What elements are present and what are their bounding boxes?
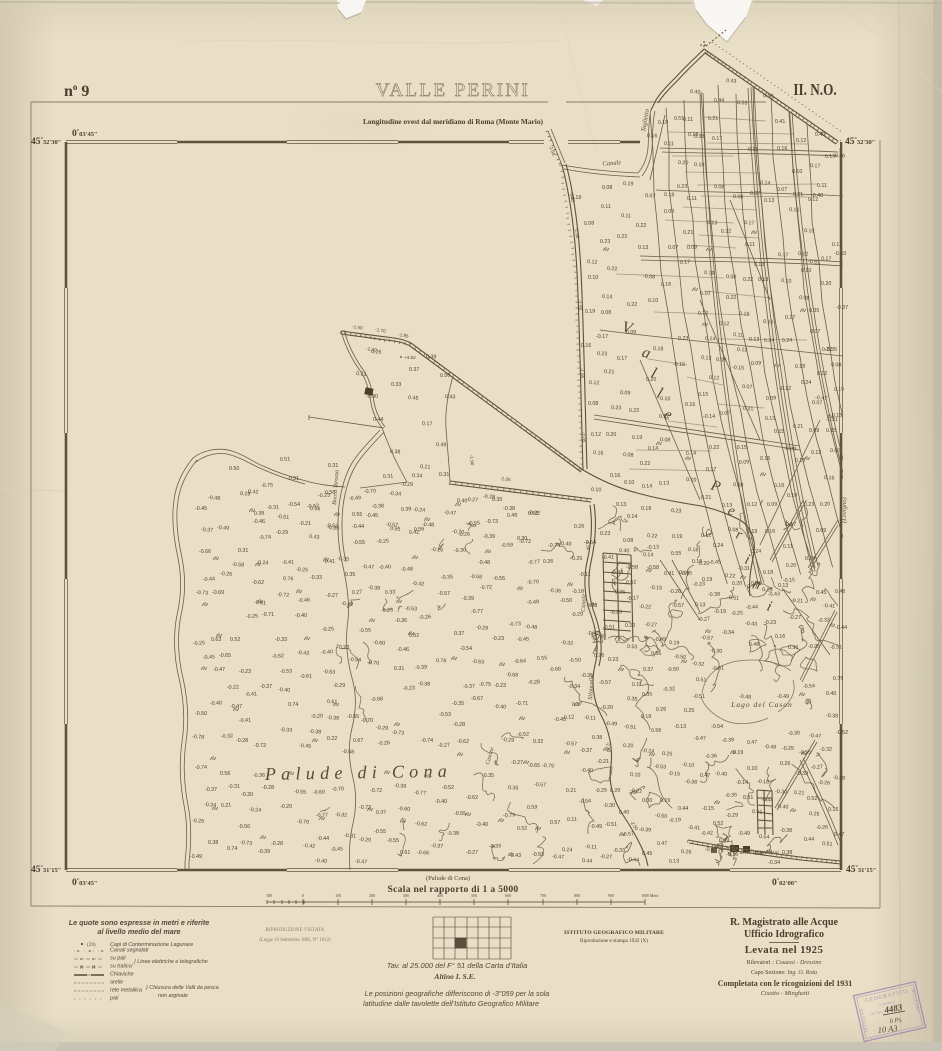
svg-text:0.16: 0.16 [685,402,695,408]
svg-text:0.55: 0.55 [390,526,401,533]
svg-text:-0.74: -0.74 [195,765,207,771]
svg-text:0.40: 0.40 [826,691,836,697]
svg-text:-0.27: -0.27 [466,497,478,503]
svg-text:-0.23: -0.23 [337,645,349,651]
svg-text:-0.47: -0.47 [213,667,225,673]
svg-text:-0.29: -0.29 [571,612,583,618]
svg-text:0.15: 0.15 [760,456,770,462]
svg-text:0.35: 0.35 [809,308,819,314]
svg-text:0.16: 0.16 [593,450,604,457]
svg-text:-0.64: -0.64 [514,658,526,665]
svg-text:-0.74: -0.74 [259,535,271,541]
svg-text:0.11: 0.11 [745,242,755,248]
svg-text:-0.15: -0.15 [702,806,714,812]
svg-text:-0.68: -0.68 [506,672,518,679]
svg-text:0.15: 0.15 [826,428,837,434]
svg-text:0.37: 0.37 [643,667,653,673]
svg-text:0.08: 0.08 [733,482,744,489]
svg-text:-0.15: -0.15 [732,365,744,371]
svg-text:-0.51: -0.51 [826,417,838,423]
svg-text:-0.16: -0.16 [726,852,738,858]
svg-text:-0.27: -0.27 [789,615,801,621]
svg-text:0.23: 0.23 [804,502,815,508]
svg-text:0.09: 0.09 [687,244,698,251]
svg-text:-0.09: -0.09 [784,446,796,452]
svg-text:-0.41: -0.41 [245,691,257,698]
svg-text:0.09: 0.09 [809,428,819,434]
svg-text:-0.23: -0.23 [239,669,251,675]
svg-text:0.20: 0.20 [625,623,636,629]
svg-text:0.10: 0.10 [624,480,634,486]
svg-text:0.12: 0.12 [591,431,602,438]
svg-text:arelle: arelle [110,980,123,986]
svg-text:Lago del Cason: Lago del Cason [730,700,793,709]
svg-text:0.39: 0.39 [426,354,437,360]
svg-text:0.25: 0.25 [809,811,820,818]
svg-text:0.47: 0.47 [700,773,710,779]
svg-text:0.12: 0.12 [747,502,758,508]
svg-text:0.16: 0.16 [795,457,806,464]
svg-text:0.19: 0.19 [672,534,682,540]
svg-text:0.40: 0.40 [690,89,701,96]
svg-text:-0.62: -0.62 [252,580,264,586]
svg-text:0.49: 0.49 [436,442,447,448]
svg-text:Riproduzione e stampa 1932 (X): Riproduzione e stampa 1932 (X) [580,937,648,944]
svg-text:-0.23: -0.23 [693,581,706,588]
svg-text:-0.25: -0.25 [193,640,205,647]
svg-text:0.35: 0.35 [627,696,638,703]
svg-text:0.17: 0.17 [832,242,843,248]
svg-text:-0.62: -0.62 [415,821,428,828]
svg-text:0.36: 0.36 [788,645,799,651]
svg-text:0.12: 0.12 [817,371,827,377]
svg-text:-0.35: -0.35 [452,701,464,707]
svg-text:0.20: 0.20 [820,501,831,508]
svg-text:-0.41: -0.41 [239,718,251,724]
svg-text:0.21: 0.21 [356,371,367,378]
svg-text:900: 900 [608,894,614,898]
svg-text:0.31: 0.31 [752,809,763,816]
svg-text:0.50: 0.50 [440,373,451,379]
svg-text:0.28: 0.28 [587,603,597,609]
svg-text:0.17: 0.17 [810,163,821,170]
svg-text:-0.44: -0.44 [352,524,364,530]
svg-text:0.08: 0.08 [584,220,595,227]
svg-text:0.16: 0.16 [824,475,835,482]
svg-text:-0.66: -0.66 [199,549,211,555]
svg-text:-0.75: -0.75 [479,682,491,688]
svg-text:-0.75: -0.75 [261,483,273,489]
svg-text:0.08: 0.08 [623,452,634,459]
svg-text:Altino I. S.E.: Altino I. S.E. [433,972,475,981]
svg-text:-0.43: -0.43 [297,650,309,657]
svg-text:-0.49: -0.49 [654,637,666,643]
svg-text:0.18: 0.18 [641,506,651,512]
svg-text:-0.20: -0.20 [359,837,371,843]
svg-text:-0.40: -0.40 [321,649,334,656]
svg-text:100: 100 [266,894,272,898]
svg-text:0.32: 0.32 [533,739,543,745]
svg-text:-0.37: -0.37 [463,684,475,690]
svg-text:0.21: 0.21 [420,464,431,471]
svg-text:-0.27: -0.27 [326,593,338,599]
svg-text:-0.58: -0.58 [647,565,659,571]
svg-text:0.11: 0.11 [783,543,793,550]
svg-text:-0.39: -0.39 [639,827,651,833]
svg-text:0.43: 0.43 [726,78,737,85]
svg-text:0.16: 0.16 [763,319,774,326]
svg-text:-0.68: -0.68 [371,696,384,703]
svg-text:-0.17: -0.17 [627,595,639,602]
svg-text:-0.70: -0.70 [332,786,345,793]
svg-text:-0.32: -0.32 [820,747,832,753]
svg-text:-0.32: -0.32 [692,661,705,668]
svg-text:-0.53: -0.53 [405,606,417,612]
svg-text:-0.39: -0.39 [722,737,735,744]
svg-text:-0.34: -0.34 [204,802,216,809]
svg-text:-0.72: -0.72 [480,585,492,591]
svg-text:-0.45: -0.45 [331,846,343,853]
svg-text:-0.40: -0.40 [476,822,488,828]
svg-text:-0.53: -0.53 [532,852,544,858]
svg-text:0.07: 0.07 [645,193,656,200]
svg-text:-0.58: -0.58 [232,562,244,568]
svg-text:0.45: 0.45 [408,395,419,402]
svg-text:-0.31: -0.31 [344,833,356,839]
svg-text:-0.71: -0.71 [262,612,274,618]
svg-text:-0.42: -0.42 [412,581,424,587]
svg-text:-0.54: -0.54 [460,646,472,652]
svg-text:-0.28: -0.28 [236,738,248,744]
svg-text:0.26: 0.26 [371,349,382,356]
svg-text:-0.54: -0.54 [349,657,361,663]
svg-text:0.13: 0.13 [754,262,764,268]
svg-text:-0.27: -0.27 [645,622,657,628]
svg-text:-0.25: -0.25 [246,614,258,620]
svg-text:-0.38: -0.38 [309,729,321,735]
svg-text:-0.73: -0.73 [509,621,522,628]
svg-text:0.31: 0.31 [383,473,394,480]
svg-text:-0.11: -0.11 [579,572,591,578]
svg-text:0.47: 0.47 [834,832,844,838]
svg-text:0.11: 0.11 [621,213,631,220]
svg-text:0.44: 0.44 [804,836,815,843]
svg-text:-0.73: -0.73 [486,519,498,525]
svg-text:Capo Sezione: Ing. O. Rota: Capo Sezione: Ing. O. Rota [751,970,817,976]
svg-text:0.37: 0.37 [572,701,583,708]
svg-text:0.52: 0.52 [230,637,240,643]
svg-text:-0.57: -0.57 [599,680,611,686]
svg-text:0.11: 0.11 [601,204,611,210]
svg-text:-0.66: -0.66 [417,850,429,856]
svg-text:0.50: 0.50 [229,466,239,472]
svg-text:-0.35: -0.35 [825,347,837,353]
svg-text:rete metallica: rete metallica [110,988,142,994]
svg-text:-0.38: -0.38 [503,506,515,512]
svg-text:-0.40: -0.40 [315,858,328,865]
svg-text:0.56: 0.56 [651,728,662,734]
svg-text:-0.27: -0.27 [511,760,523,766]
svg-text:0.18: 0.18 [795,363,806,370]
svg-text:-0.40: -0.40 [494,704,506,710]
svg-text:-0.24: -0.24 [413,507,425,514]
svg-text:-0.72: -0.72 [370,788,382,794]
svg-text:-0.20: -0.20 [311,713,323,720]
svg-text:-0.31: -0.31 [830,644,842,651]
svg-text:-0.40: -0.40 [379,564,392,571]
svg-text:0.22: 0.22 [726,295,736,301]
svg-text:0.24: 0.24 [713,543,723,549]
svg-text:(29): (29) [87,941,96,948]
svg-text:0.29: 0.29 [610,788,621,794]
svg-text:-0.60: -0.60 [398,806,410,813]
svg-text:-0.49: -0.49 [605,721,617,727]
svg-text:-0.35: -0.35 [581,673,593,679]
svg-text:-2.05: -2.05 [581,432,586,443]
svg-text:-0.49: -0.49 [777,694,789,700]
svg-text:-0.15: -0.15 [650,585,662,591]
svg-text:-0.32: -0.32 [335,812,347,819]
svg-text:0.14: 0.14 [627,514,637,520]
svg-text:-0.15: -0.15 [783,577,795,584]
svg-text:pali: pali [109,996,119,1002]
svg-text:-0.49: -0.49 [527,599,540,606]
svg-text:-0.34: -0.34 [389,491,401,497]
svg-text:0.18: 0.18 [688,132,698,138]
svg-text:0.09: 0.09 [766,395,777,402]
svg-text:-0.58: -0.58 [470,574,482,580]
svg-text:0.40: 0.40 [561,541,572,548]
svg-text:-0.25: -0.25 [595,788,607,794]
svg-text:-0.53: -0.53 [439,712,451,718]
svg-text:0.56: 0.56 [325,490,336,496]
svg-text:-0.31: -0.31 [267,505,279,511]
svg-text:0.21: 0.21 [793,423,804,430]
svg-text:0.13: 0.13 [707,220,718,226]
svg-text:0.26: 0.26 [656,706,667,713]
svg-text:-0.44: -0.44 [627,857,639,863]
svg-text:0.31: 0.31 [328,463,338,469]
svg-text:-0.47: -0.47 [809,733,821,740]
svg-text:-0.45: -0.45 [517,637,529,643]
svg-text:-0.33: -0.33 [489,843,501,850]
svg-text:-0.35: -0.35 [337,556,349,563]
svg-text:-0.51: -0.51 [808,259,821,266]
svg-text:0.18: 0.18 [571,195,581,201]
svg-text:0.53: 0.53 [737,100,748,107]
svg-text:0.44: 0.44 [714,97,725,104]
svg-text:0.17: 0.17 [680,259,691,266]
svg-text:-0.27: -0.27 [438,742,450,749]
svg-text:-0.54: -0.54 [803,683,815,690]
svg-text:-0.30: -0.30 [366,394,378,400]
svg-text:-0.26: -0.26 [458,532,470,538]
svg-text:-0.29: -0.29 [502,737,515,744]
svg-text:0.09: 0.09 [620,390,631,397]
svg-text:-0.47: -0.47 [444,510,456,517]
svg-text:0.21: 0.21 [708,116,719,122]
svg-text:-0.23: -0.23 [492,636,504,642]
svg-text:0.38: 0.38 [208,840,218,846]
svg-text:-1.60: -1.60 [577,300,583,311]
svg-text:-0.15: -0.15 [735,445,747,451]
svg-text:-0.52: -0.52 [442,785,454,791]
svg-text:-0.49: -0.49 [349,495,361,502]
svg-text:-0.52: -0.52 [836,730,848,736]
svg-text:-0.58: -0.58 [626,565,638,571]
svg-text:0.08: 0.08 [660,437,671,444]
svg-text:VALLE PERINI: VALLE PERINI [376,80,531,101]
svg-text:-0.45: -0.45 [195,506,207,512]
svg-text:0.20: 0.20 [606,432,616,438]
svg-text:Le posizioni geografiche diffe: Le posizioni geografiche differiscono di… [365,989,550,998]
svg-text:0.31: 0.31 [439,472,449,478]
svg-text:-0.23: -0.23 [381,607,393,614]
svg-text:-0.30: -0.30 [603,803,615,809]
svg-text:0.13: 0.13 [765,416,776,422]
svg-text:-0.50: -0.50 [667,667,679,673]
svg-text:-0.53: -0.53 [654,764,666,770]
svg-text:-0.58: -0.58 [342,749,354,755]
svg-text:0.18: 0.18 [787,492,798,499]
svg-text:0.21: 0.21 [701,495,711,501]
svg-text:-0.77: -0.77 [414,790,426,797]
svg-text:-0.31: -0.31 [228,784,240,790]
svg-text:Rilevatori : Couassi - Dressin: Rilevatori : Couassi - Dressino [747,960,822,966]
svg-text:0.11: 0.11 [748,147,758,153]
svg-text:(Palude di Cona): (Palude di Cona) [426,875,470,882]
svg-text:-0.56: -0.56 [238,824,250,830]
svg-text:-1.85: -1.85 [579,368,585,379]
svg-text:0.13: 0.13 [669,858,680,865]
svg-text:-0.48: -0.48 [739,694,751,700]
svg-text:0.35: 0.35 [642,691,653,698]
svg-text:0.35: 0.35 [492,497,502,503]
svg-text:0.55: 0.55 [537,655,548,662]
svg-text:-0.08: -0.08 [643,274,655,280]
svg-text:-0.54: -0.54 [711,724,723,730]
svg-text:-0.47: -0.47 [230,704,242,710]
svg-text:600: 600 [505,894,511,898]
svg-text:1000: 1000 [641,894,649,898]
svg-text:0.15: 0.15 [739,311,750,318]
svg-text:Le quote sono espresse in metr: Le quote sono espresse in metri e riferi… [69,918,210,927]
svg-text:0: 0 [302,894,304,898]
svg-text:-0.20: -0.20 [601,705,613,711]
svg-text:0.52: 0.52 [807,796,817,802]
svg-text:-0.28: -0.28 [271,841,283,847]
svg-text:-0.55: -0.55 [353,540,365,546]
svg-text:0.52: 0.52 [626,579,637,586]
svg-text:0.13: 0.13 [616,502,626,508]
svg-text:-0.45: -0.45 [709,559,721,566]
svg-text:-0.29: -0.29 [376,725,388,732]
svg-text:-0.37: -0.37 [431,843,444,850]
svg-text:-0.55: -0.55 [454,811,466,817]
svg-text:al livello medio del mare: al livello medio del mare [97,927,180,936]
svg-text:0.57: 0.57 [550,820,560,826]
svg-text:-0.38: -0.38 [327,715,339,722]
svg-text:-0.41: -0.41 [282,560,294,566]
svg-text:0.11: 0.11 [664,141,674,147]
svg-text:-0.29: -0.29 [401,482,413,488]
svg-text:0.35: 0.35 [508,785,519,792]
svg-text:0.20: 0.20 [732,580,743,587]
svg-text:0.10: 0.10 [694,162,705,168]
svg-text:-0.70: -0.70 [297,819,309,826]
svg-text:-0.57: -0.57 [438,591,450,597]
svg-text:no 9: no 9 [64,82,89,100]
svg-text:700: 700 [540,894,546,898]
svg-text:-0.43: -0.43 [768,591,781,598]
svg-text:0.21: 0.21 [566,788,577,794]
svg-text:0.38: 0.38 [592,735,603,741]
svg-text:-0.18: -0.18 [757,779,769,785]
svg-text:0.26: 0.26 [681,849,692,856]
svg-text:0.37: 0.37 [376,809,387,816]
svg-text:-0.40: -0.40 [295,613,307,619]
svg-text:0.16: 0.16 [661,281,672,288]
svg-text:-0.70: -0.70 [361,718,373,724]
svg-text:-0.55: -0.55 [680,571,692,577]
svg-text:-0.40: -0.40 [435,799,447,805]
svg-text:-0.53: -0.53 [280,669,292,675]
svg-text:-0.45: -0.45 [299,743,311,750]
svg-text:-0.26: -0.26 [378,740,391,747]
svg-text:0.43: 0.43 [309,534,320,541]
svg-text:0.22: 0.22 [629,408,640,414]
svg-text:0.24: 0.24 [562,847,573,854]
svg-text:0.21: 0.21 [743,406,754,412]
svg-text:-0.70: -0.70 [367,660,379,667]
svg-text:0.17: 0.17 [422,421,433,427]
svg-text:-0.62: -0.62 [272,653,285,660]
svg-text:-0.11: -0.11 [585,844,597,851]
svg-text:0.08: 0.08 [831,362,842,369]
svg-text:-0.38: -0.38 [368,585,380,592]
svg-text:0.22: 0.22 [607,266,618,272]
svg-text:-0.45: -0.45 [203,654,215,661]
svg-text:-0.54: -0.54 [288,502,300,508]
svg-text:0.17: 0.17 [785,315,795,321]
svg-text:0.53: 0.53 [627,644,638,650]
svg-text:0.22: 0.22 [617,234,628,240]
svg-text:0.20: 0.20 [646,377,656,383]
svg-text:-0.73: -0.73 [392,730,404,736]
svg-text:0.19: 0.19 [704,270,715,277]
svg-text:0.17: 0.17 [786,522,797,528]
svg-text:0.39: 0.39 [401,506,412,513]
svg-text:0.30: 0.30 [517,536,527,542]
svg-text:-0.47: -0.47 [815,395,828,402]
svg-text:0.35: 0.35 [345,572,355,578]
svg-text:0.07: 0.07 [777,187,788,193]
svg-text:0.13: 0.13 [722,502,733,509]
svg-text:-0.37: -0.37 [580,748,592,754]
svg-text:-0.14: -0.14 [703,414,715,420]
svg-text:0.25: 0.25 [662,751,673,758]
svg-text:-0.41: -0.41 [602,555,614,561]
svg-text:0.12: 0.12 [701,533,712,539]
svg-text:0.49: 0.49 [719,838,730,844]
svg-text:-0.47: -0.47 [694,736,706,742]
svg-text:0.38: 0.38 [254,510,265,517]
svg-text:0.24: 0.24 [751,548,762,555]
svg-text:-0.31: -0.31 [738,566,750,572]
svg-text:Tav. al 25.000 del F° 51 dell: Tav. al 25.000 del F° 51 della Carta d’I… [387,961,528,970]
svg-text:-0.57: -0.57 [622,831,635,838]
svg-text:0.37: 0.37 [409,367,419,373]
